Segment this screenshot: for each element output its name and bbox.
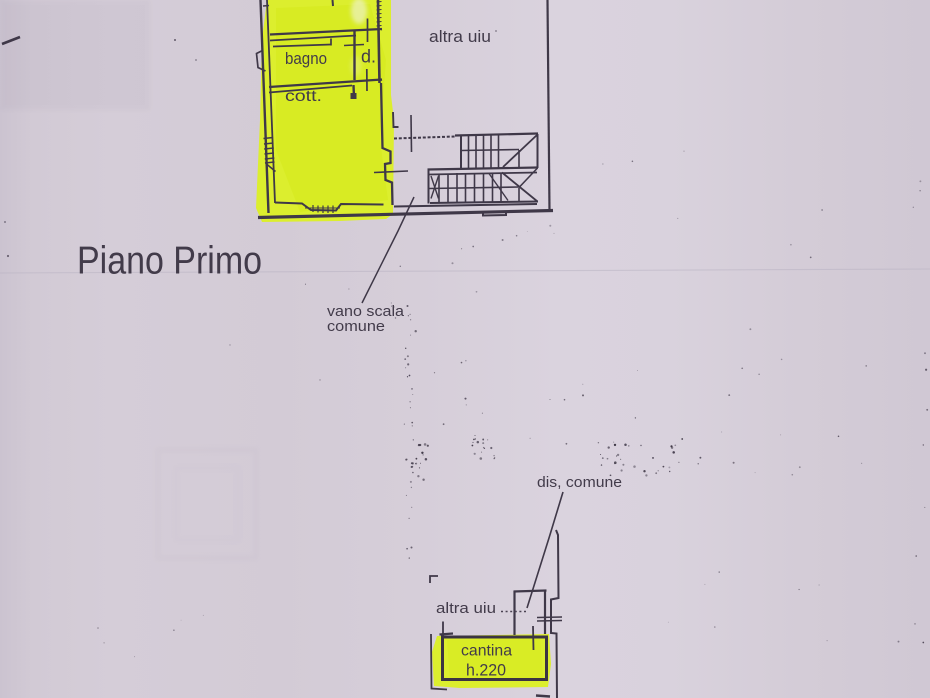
svg-text:Piano Primo: Piano Primo xyxy=(77,240,262,283)
svg-text:dis, comune: dis, comune xyxy=(537,474,622,491)
svg-text:altra uiu: altra uiu xyxy=(436,600,496,617)
svg-text:cantina: cantina xyxy=(461,643,512,660)
svg-text:cott.: cott. xyxy=(285,88,322,105)
svg-text:h.220: h.220 xyxy=(466,661,506,680)
svg-text:d.: d. xyxy=(361,47,376,67)
svg-text:comune: comune xyxy=(327,318,385,335)
svg-text:bagno: bagno xyxy=(285,50,327,68)
svg-text:altra uiu: altra uiu xyxy=(429,27,491,46)
